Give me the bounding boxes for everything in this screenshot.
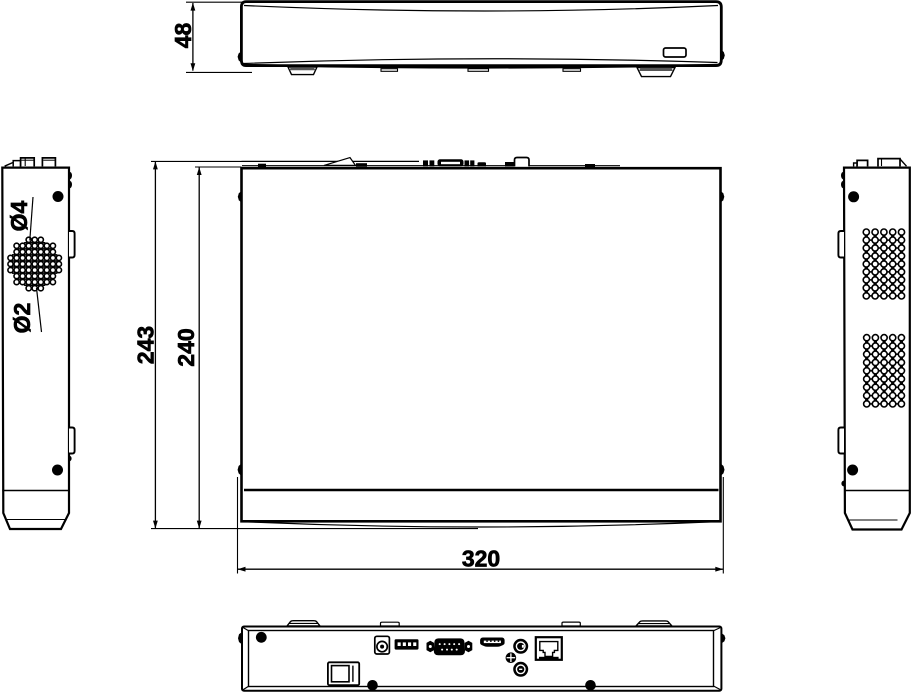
- svg-text:320: 320: [462, 546, 500, 572]
- svg-text:243: 243: [133, 326, 159, 364]
- svg-text:240: 240: [173, 328, 199, 366]
- svg-text:Ø4: Ø4: [6, 200, 32, 231]
- svg-text:48: 48: [170, 23, 196, 49]
- svg-text:Ø2: Ø2: [9, 303, 35, 334]
